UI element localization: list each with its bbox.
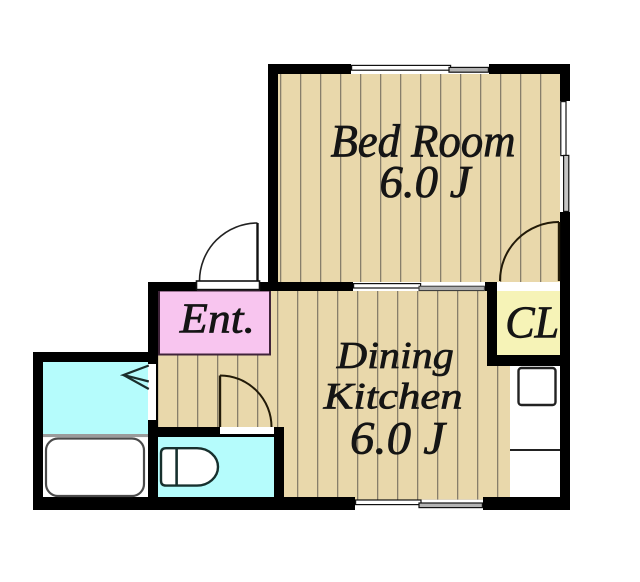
svg-text:CL: CL: [505, 297, 559, 348]
svg-text:Dining: Dining: [336, 335, 454, 377]
svg-text:6.0 J: 6.0 J: [350, 413, 447, 465]
svg-text:6.0 J: 6.0 J: [380, 157, 473, 207]
svg-text:Ent.: Ent.: [179, 296, 255, 343]
svg-text:Kitchen: Kitchen: [322, 376, 462, 417]
